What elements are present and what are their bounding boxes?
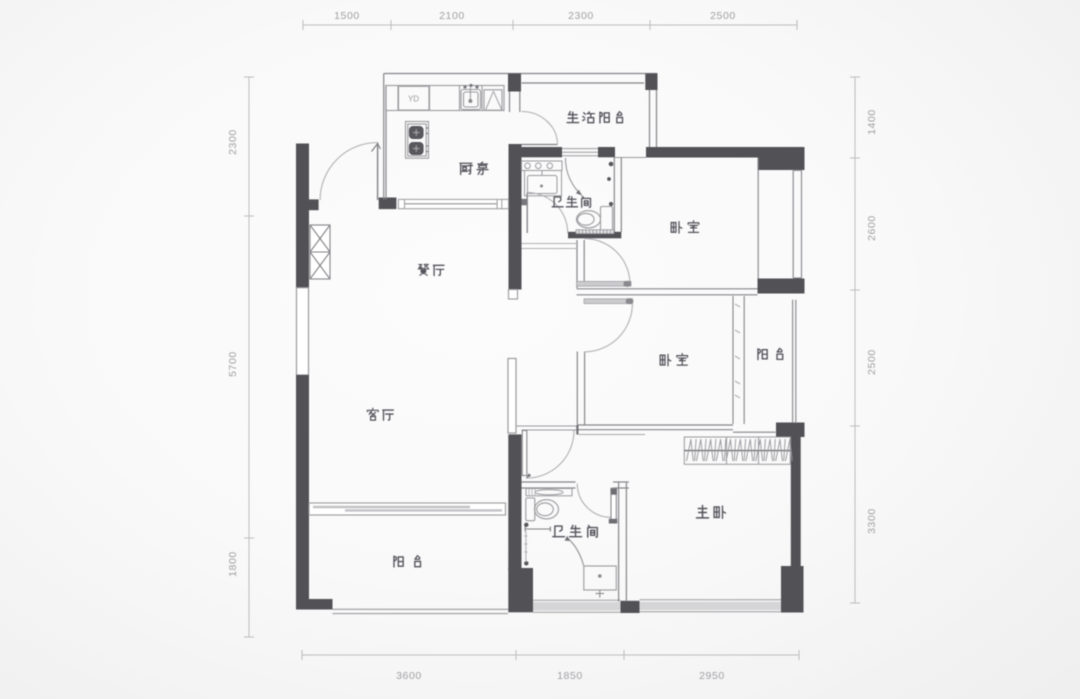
svg-text:2600: 2600	[866, 215, 878, 241]
svg-text:1800: 1800	[227, 551, 239, 577]
svg-text:2950: 2950	[699, 670, 725, 682]
svg-text:YD: YD	[408, 95, 419, 104]
svg-text:2300: 2300	[568, 10, 594, 22]
svg-text:2100: 2100	[439, 10, 465, 22]
svg-text:1850: 1850	[557, 670, 583, 682]
svg-text:2300: 2300	[227, 129, 239, 155]
svg-text:1400: 1400	[866, 109, 878, 135]
svg-text:1500: 1500	[334, 10, 360, 22]
svg-text:2500: 2500	[866, 349, 878, 375]
svg-text:2500: 2500	[710, 10, 736, 22]
svg-text:3300: 3300	[866, 508, 878, 534]
svg-text:3600: 3600	[396, 670, 422, 682]
svg-text:5700: 5700	[227, 351, 239, 377]
